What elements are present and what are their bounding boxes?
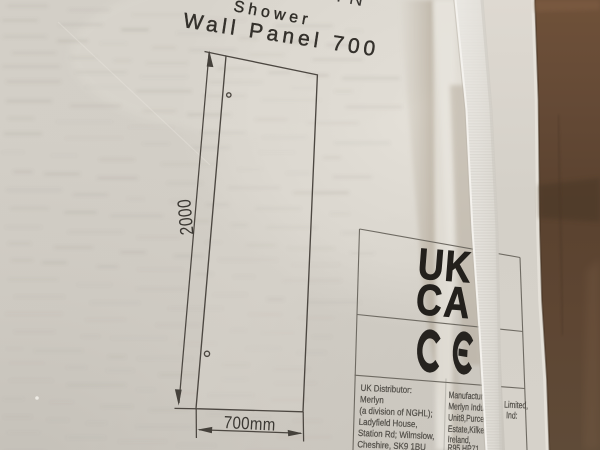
- svg-text:700mm: 700mm: [223, 413, 276, 435]
- svg-text:Cheshire, SK9 1BU: Cheshire, SK9 1BU: [357, 439, 426, 450]
- svg-text:CA: CA: [414, 276, 473, 328]
- svg-text:Limited,: Limited,: [504, 400, 529, 411]
- svg-text:2000: 2000: [173, 198, 198, 236]
- svg-text:Unit8,Purcell: Unit8,Purcell: [448, 413, 488, 425]
- svg-text:R95 HP71.: R95 HP71.: [447, 443, 481, 450]
- svg-text:Ind:: Ind:: [506, 410, 518, 421]
- svg-text:Merlyn: Merlyn: [360, 394, 384, 406]
